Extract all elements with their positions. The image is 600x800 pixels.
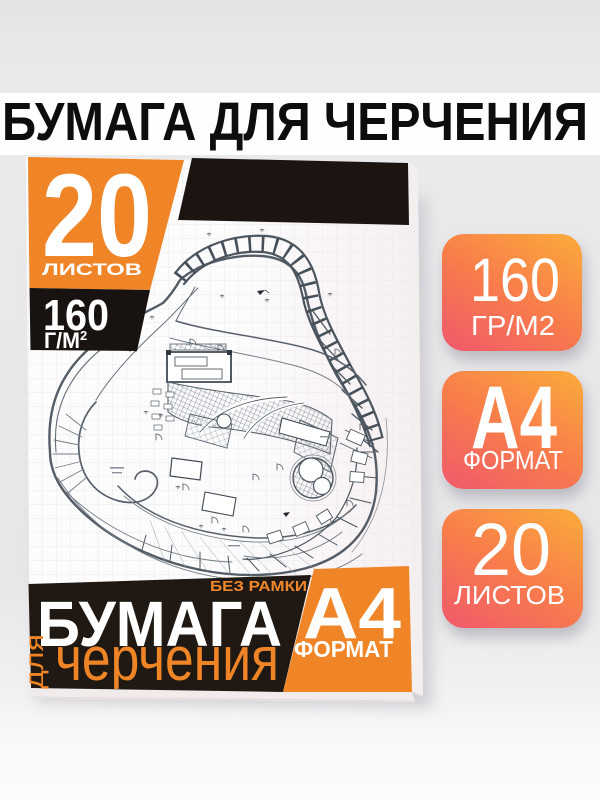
svg-text:для: для bbox=[19, 634, 49, 689]
svg-text:ЛИСТОВ: ЛИСТОВ bbox=[454, 580, 565, 610]
svg-text:ГР/М2: ГР/М2 bbox=[471, 310, 555, 341]
svg-text:черчения: черчения bbox=[55, 625, 279, 694]
svg-text:ЛИСТОВ: ЛИСТОВ bbox=[42, 260, 142, 279]
svg-text:20: 20 bbox=[471, 508, 551, 591]
svg-text:БУМАГА ДЛЯ ЧЕРЧЕНИЯ: БУМАГА ДЛЯ ЧЕРЧЕНИЯ bbox=[2, 92, 588, 152]
svg-text:Г/М: Г/М bbox=[44, 328, 80, 353]
svg-text:2: 2 bbox=[80, 328, 87, 343]
svg-text:160: 160 bbox=[470, 246, 560, 314]
svg-text:ФОРМАТ: ФОРМАТ bbox=[294, 636, 393, 662]
svg-text:ФОРМАТ: ФОРМАТ bbox=[463, 445, 563, 475]
